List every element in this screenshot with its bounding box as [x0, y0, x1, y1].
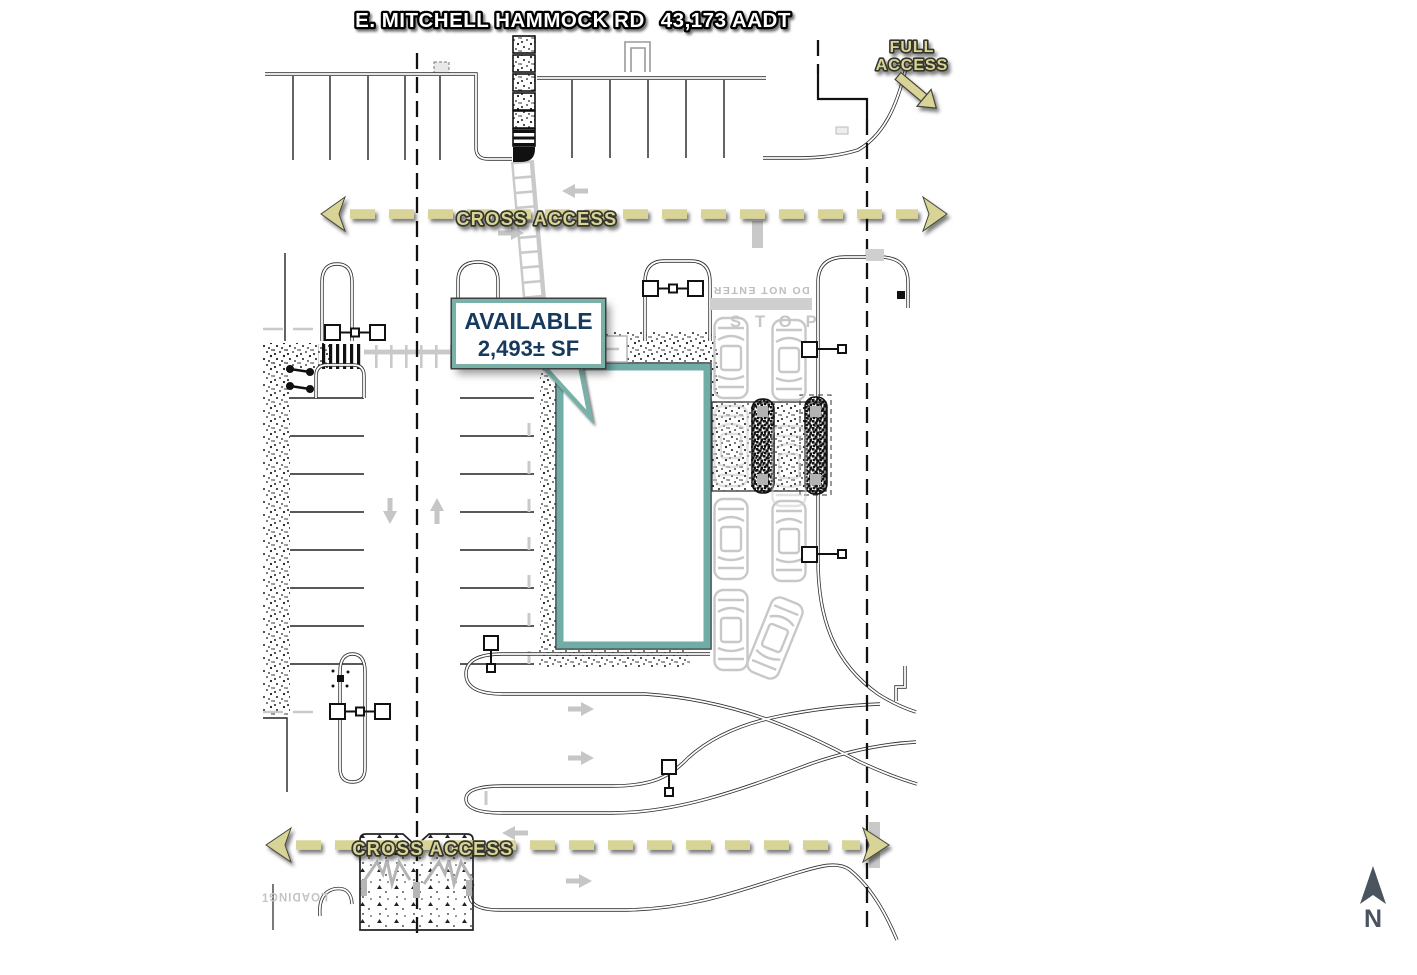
cross-access-arrow-top: CROSS ACCESS	[321, 197, 947, 231]
callout-availability: AVAILABLE	[456, 307, 601, 335]
queued-cars	[715, 318, 806, 681]
cross-access-arrow-bottom: CROSS ACCESS	[266, 828, 889, 862]
bike-rack-icon	[287, 366, 313, 392]
sign-marker-icon	[325, 325, 385, 340]
car-icon	[773, 501, 806, 581]
traffic-arrow-right-icon	[568, 702, 594, 716]
traffic-arrow-left-icon	[562, 184, 588, 198]
median-marker	[434, 62, 449, 73]
entrance-median	[513, 36, 535, 162]
small-marker	[836, 127, 848, 134]
traffic-arrow-down-icon	[383, 498, 397, 524]
cross-access-left-arrowhead-icon	[321, 197, 345, 231]
north-label: N	[1364, 905, 1382, 933]
traffic-arrow-right-icon	[566, 874, 592, 888]
road-name: E. MITCHELL HAMMOCK RD	[355, 9, 645, 32]
sign-marker-icon	[643, 281, 703, 296]
cross-access-top-label: CROSS ACCESS	[456, 209, 617, 229]
car-icon	[773, 320, 806, 400]
car-icon	[715, 590, 748, 670]
available-callout: AVAILABLE 2,493± SF	[452, 299, 605, 368]
stop-bar	[710, 298, 812, 310]
sign-marker-icon	[802, 547, 846, 562]
callout-size: 2,493± SF	[456, 335, 601, 362]
road-title: E. MITCHELL HAMMOCK RD43,173 AADT	[355, 9, 791, 32]
cross-access-bottom-label: CROSS ACCESS	[352, 839, 513, 859]
cross-access-left-arrowhead-icon	[266, 828, 291, 862]
cross-access-right-arrowhead-icon	[923, 197, 947, 231]
full-access-label-line2: ACCESS	[876, 57, 949, 74]
gray-stall-marks	[263, 329, 529, 805]
loading-label: LOADING	[268, 890, 328, 902]
stop-label: STOP	[730, 313, 831, 331]
traffic-arrow-right-icon	[568, 751, 594, 765]
cart-corral	[625, 42, 650, 72]
car-icon	[745, 595, 806, 682]
full-access-corner-line	[818, 73, 867, 119]
north-arrow-icon: N	[1360, 866, 1386, 933]
full-access-label-group: FULL ACCESS	[876, 39, 949, 117]
traffic-arrow-up-icon	[430, 498, 444, 524]
site-plan-canvas: DO NOT ENTER STOP LOADING 1 CROSS ACCESS…	[0, 0, 1417, 975]
traffic-arrow-left-icon	[502, 826, 528, 840]
car-icon	[715, 499, 748, 579]
sign-marker-icon	[330, 704, 390, 719]
traffic-count: 43,173 AADT	[661, 9, 791, 32]
sign-marker-icon	[802, 342, 846, 357]
loading-space-number: 1	[262, 893, 269, 905]
full-access-label-line1: FULL	[890, 39, 935, 56]
sign-marker-icon	[897, 291, 905, 299]
site-plan-page: DO NOT ENTER STOP LOADING 1 CROSS ACCESS…	[0, 0, 1417, 975]
do-not-enter-label: DO NOT ENTER	[712, 284, 809, 296]
